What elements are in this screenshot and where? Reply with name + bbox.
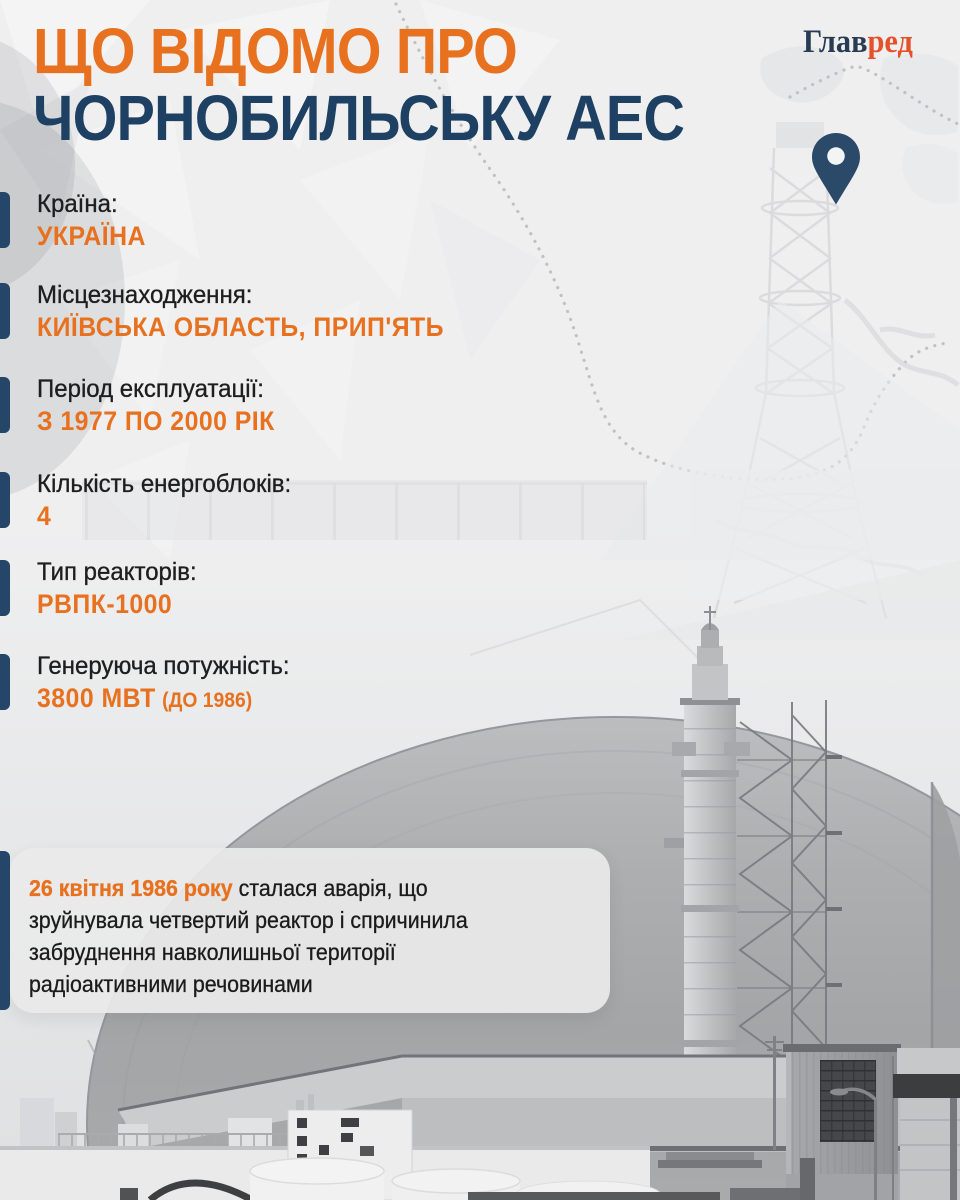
fact-label: Країна:: [37, 189, 597, 219]
fact-marker-bar: [0, 654, 10, 710]
fact-label: Тип реакторів:: [37, 557, 597, 587]
fact-label: Місцезнаходження:: [37, 280, 597, 310]
fact-value: 3800 МВТ(ДО 1986): [37, 681, 573, 718]
page-title-line1: ЩО ВІДОМО ПРО: [33, 18, 684, 85]
fact-marker-bar: [0, 560, 10, 616]
fact-marker-bar: [0, 283, 10, 339]
incident-line2: зруйнувала четвертий реактор і спричинил…: [29, 904, 541, 936]
fact-value: З 1977 ПО 2000 РІК: [37, 404, 573, 438]
fact-label: Генеруюча потужність:: [37, 651, 597, 681]
fact-value: УКРАЇНА: [37, 219, 573, 253]
fact-capacity: Генеруюча потужність: 3800 МВТ(ДО 1986): [0, 651, 620, 718]
fact-operation-period: Період експлуатації: З 1977 ПО 2000 РІК: [0, 374, 620, 438]
fact-marker-bar: [0, 377, 10, 433]
fact-value-note: (ДО 1986): [162, 689, 252, 712]
fact-location: Місцезнаходження: КИЇВСЬКА ОБЛАСТЬ, ПРИП…: [0, 280, 620, 344]
logo-part-navy: Глав: [803, 24, 868, 60]
infographic-poster: ЩО ВІДОМО ПРО ЧОРНОБИЛЬСЬКУ АЕС Главред …: [0, 0, 960, 1200]
fact-value: 4: [37, 499, 573, 533]
page-title-line2: ЧОРНОБИЛЬСЬКУ АЕС: [33, 85, 684, 152]
fact-marker-bar: [0, 192, 10, 248]
glavred-logo: Главред: [803, 24, 913, 60]
incident-date-highlight: 26 квітня 1986 року: [29, 875, 233, 901]
incident-marker-bar: [0, 851, 10, 1010]
fact-label: Кількість енергоблоків:: [37, 469, 597, 499]
incident-card: 26 квітня 1986 року сталася аварія, що з…: [10, 848, 610, 1013]
fact-country: Країна: УКРАЇНА: [0, 189, 620, 253]
logo-part-red: ред: [868, 24, 913, 60]
incident-line4: радіоактивними речовинами: [29, 968, 541, 1000]
fact-label: Період експлуатації:: [37, 374, 597, 404]
incident-line3: забруднення навколишньої території: [29, 936, 541, 968]
incident-line1: 26 квітня 1986 року сталася аварія, що: [29, 872, 541, 904]
location-pin-icon: [812, 133, 860, 205]
fact-unit-count: Кількість енергоблоків: 4: [0, 469, 620, 533]
fact-marker-bar: [0, 472, 10, 528]
fact-reactor-type: Тип реакторів: РВПК-1000: [0, 557, 620, 621]
fact-value: РВПК-1000: [37, 587, 573, 621]
fact-value: КИЇВСЬКА ОБЛАСТЬ, ПРИП'ЯТЬ: [37, 310, 573, 344]
page-title: ЩО ВІДОМО ПРО ЧОРНОБИЛЬСЬКУ АЕС: [33, 18, 756, 152]
